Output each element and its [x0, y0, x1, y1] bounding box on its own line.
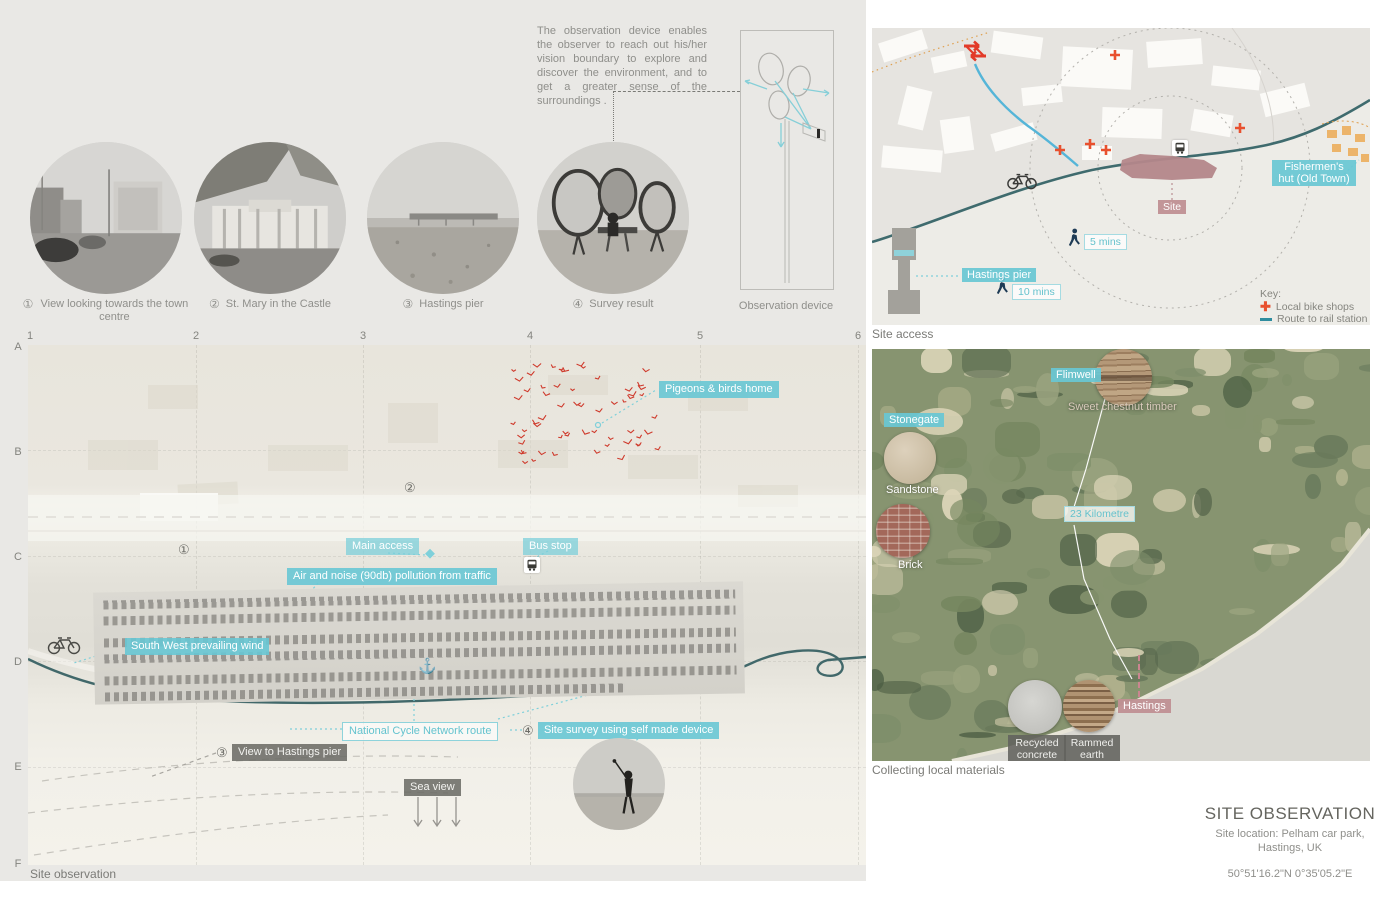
- label-cycle-network-route: National Cycle Network route: [342, 722, 498, 741]
- photo-number-3: ③: [403, 298, 414, 311]
- photo-number-4: ④: [573, 298, 584, 311]
- label-pigeons-birds-home: Pigeons & birds home: [659, 381, 779, 398]
- left-panel: The observation device enables the obser…: [0, 0, 866, 881]
- label-flimwell: Flimwell: [1051, 368, 1101, 382]
- timber-sample-circle: [1095, 349, 1152, 406]
- key-title: Key:: [1260, 288, 1367, 301]
- photo-town-centre: [30, 142, 182, 294]
- survey-photo-circle: [573, 738, 665, 830]
- bus-icon: [1172, 140, 1188, 156]
- label-bus-stop: Bus stop: [523, 538, 578, 555]
- photo-number-1: ①: [23, 298, 34, 324]
- label-walk-5-mins: 5 mins: [1084, 234, 1127, 250]
- label-distance: 23 Kilometre: [1064, 506, 1135, 522]
- grid-col-label: 2: [190, 330, 202, 342]
- page-title: SITE OBSERVATION: [1180, 804, 1400, 824]
- photo-caption-text-3: Hastings pier: [419, 298, 483, 311]
- sandstone-sample-circle: [884, 432, 936, 484]
- label-site: Site: [1158, 200, 1186, 214]
- label-survey-number: ④: [522, 723, 534, 739]
- label-sea-view: Sea view: [404, 779, 461, 796]
- concrete-sample-circle: [1008, 680, 1062, 734]
- site-access-caption: Site access: [872, 327, 933, 341]
- site-location-line2: Hastings, UK: [1180, 841, 1400, 855]
- grid-row-label: E: [12, 761, 24, 773]
- photo-caption-2: ② St. Mary in the Castle: [180, 298, 360, 311]
- photo-caption-text-1: View looking towards the town centre: [39, 298, 189, 324]
- presentation-board: The observation device enables the obser…: [0, 0, 1400, 900]
- key-rail-label: Route to rail station: [1277, 313, 1367, 325]
- photo-st-mary: [194, 142, 346, 294]
- connector-dotted-line: [613, 91, 614, 141]
- label-prevailing-wind: South West prevailing wind: [125, 638, 269, 655]
- photo-caption-1: ① View looking towards the town centre: [16, 298, 196, 324]
- bike-shop-cross-icon: ✚: [1260, 302, 1271, 312]
- observation-device-diagram: [740, 30, 834, 290]
- sea-view-arrows: [414, 797, 460, 826]
- photo-st-mary-image: [194, 142, 346, 294]
- rail-route-line-icon: [1260, 318, 1272, 321]
- site-coordinates: 50°51'16.2"N 0°35'05.2"E: [1180, 867, 1400, 881]
- plan-marker-1: ①: [178, 542, 190, 558]
- photo-town-centre-image: [30, 142, 182, 294]
- photo-caption-text-4: Survey result: [589, 298, 653, 311]
- title-block: SITE OBSERVATION Site location: Pelham c…: [1180, 804, 1400, 881]
- materials-satellite-map: Flimwell Sweet chestnut timber Stonegate…: [872, 349, 1370, 761]
- grid-col-label: 1: [24, 330, 36, 342]
- label-air-noise-pollution: Air and noise (90db) pollution from traf…: [287, 568, 497, 585]
- observation-device-description: The observation device enables the obser…: [537, 24, 707, 108]
- map-key: Key: ✚ Local bike shops Route to rail st…: [1260, 288, 1367, 325]
- device-caption: Observation device: [726, 300, 846, 312]
- label-site-survey: Site survey using self made device: [538, 722, 719, 739]
- label-recycled-concrete: Recycled concrete: [1008, 735, 1066, 761]
- pedestrian-icon: [1068, 228, 1081, 250]
- materials-caption: Collecting local materials: [872, 763, 1005, 777]
- plan-marker-2: ②: [404, 480, 416, 496]
- photo-hastings-pier-image: [367, 142, 519, 294]
- grid-col-label: 4: [524, 330, 536, 342]
- label-fishermens-hut: Fishermen's hut (Old Town): [1272, 160, 1356, 186]
- photo-caption-text-2: St. Mary in the Castle: [226, 298, 331, 311]
- grid-row-label: D: [12, 656, 24, 668]
- photo-number-2: ②: [209, 298, 220, 311]
- hastings-leader-line: [1138, 655, 1140, 697]
- brick-sample-circle: [876, 504, 930, 558]
- site-plan-caption: Site observation: [30, 867, 116, 881]
- bicycle-icon: [46, 633, 82, 655]
- grid-col-label: 3: [357, 330, 369, 342]
- photo-caption-4: ④ Survey result: [523, 298, 703, 311]
- photo-hastings-pier: [367, 142, 519, 294]
- label-view-to-pier: View to Hastings pier: [232, 744, 347, 761]
- grid-row-label: C: [12, 551, 24, 563]
- bicycle-icon: [1006, 170, 1038, 190]
- label-rammed-earth: Rammed earth: [1064, 735, 1120, 761]
- photo-survey-result: [537, 142, 689, 294]
- label-view-pier-number: ③: [216, 745, 228, 761]
- label-stonegate: Stonegate: [884, 413, 944, 427]
- site-location-line1: Site location: Pelham car park,: [1180, 827, 1400, 841]
- grid-row-label: A: [12, 341, 24, 353]
- birds-flock: [505, 355, 675, 470]
- label-sweet-chestnut-timber: Sweet chestnut timber: [1068, 401, 1177, 413]
- label-sandstone: Sandstone: [886, 484, 939, 496]
- label-main-access: Main access: [346, 538, 419, 555]
- parked-cars-row: [103, 605, 735, 625]
- grid-row-label: B: [12, 446, 24, 458]
- grid-col-label: 6: [852, 330, 864, 342]
- label-hastings: Hastings: [1118, 699, 1171, 713]
- grid-col-label: 5: [694, 330, 706, 342]
- grid-row-label: F: [12, 858, 24, 870]
- site-plan-map: Pigeons & birds home Main access Bus sto…: [28, 345, 866, 865]
- bus-stop-icon: [524, 557, 540, 573]
- connector-dashed-line: [613, 91, 740, 92]
- rail-station-icon: [960, 40, 990, 62]
- label-brick: Brick: [898, 559, 922, 571]
- rammed-earth-sample-circle: [1063, 680, 1115, 732]
- site-access-map: Site Fishermen's hut (Old Town) Hastings…: [872, 28, 1370, 325]
- photo-survey-result-image: [537, 142, 689, 294]
- label-walk-10-mins: 10 mins: [1012, 284, 1061, 300]
- label-hastings-pier: Hastings pier: [962, 268, 1036, 282]
- survey-device-marker-icon: ⚓: [418, 657, 437, 675]
- key-bike-label: Local bike shops: [1276, 301, 1354, 314]
- photo-caption-3: ③ Hastings pier: [353, 298, 533, 311]
